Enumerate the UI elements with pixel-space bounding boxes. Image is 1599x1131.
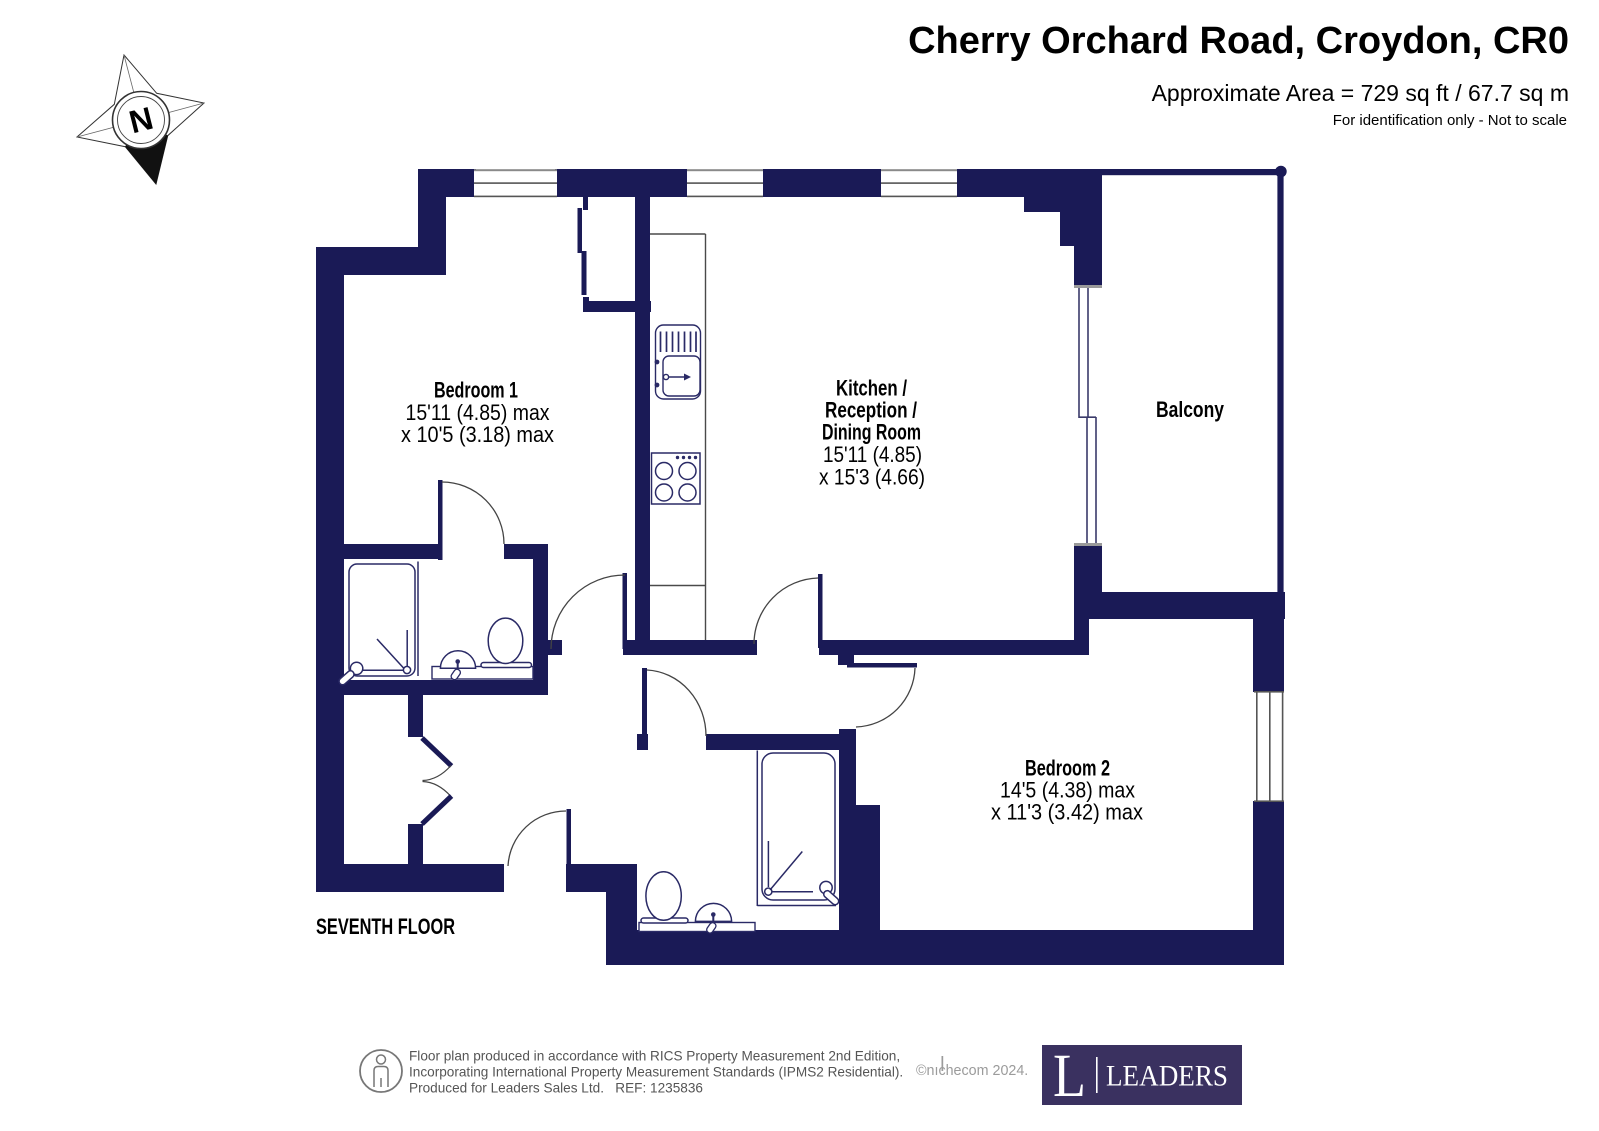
svg-text:x 11'3 (3.42) max: x 11'3 (3.42) max bbox=[991, 800, 1143, 825]
svg-text:Produced for Leaders Sales Ltd: Produced for Leaders Sales Ltd. REF: 123… bbox=[409, 1081, 703, 1096]
svg-text:Floor plan produced in accorda: Floor plan produced in accordance with R… bbox=[409, 1049, 900, 1064]
svg-text:15'11 (4.85): 15'11 (4.85) bbox=[823, 442, 922, 467]
svg-text:Approximate Area = 729 sq ft /: Approximate Area = 729 sq ft / 67.7 sq m bbox=[1152, 80, 1569, 106]
svg-text:LEADERS: LEADERS bbox=[1106, 1061, 1228, 1093]
svg-text:Balcony: Balcony bbox=[1156, 397, 1225, 422]
svg-text:L: L bbox=[1053, 1043, 1086, 1110]
svg-text:Bedroom 1: Bedroom 1 bbox=[434, 378, 518, 403]
svg-text:SEVENTH FLOOR: SEVENTH FLOOR bbox=[316, 914, 455, 939]
svg-text:Dining Room: Dining Room bbox=[822, 420, 921, 445]
svg-text:x 15'3 (4.66): x 15'3 (4.66) bbox=[819, 465, 925, 490]
svg-text:x 10'5 (3.18) max: x 10'5 (3.18) max bbox=[401, 422, 554, 447]
svg-text:©nıchecom 2024.: ©nıchecom 2024. bbox=[916, 1063, 1028, 1079]
svg-text:Cherry Orchard Road, Croydon,: Cherry Orchard Road, Croydon, CR0 bbox=[908, 20, 1569, 62]
svg-text:For identification only - Not: For identification only - Not to scale bbox=[1333, 112, 1567, 129]
svg-text:Incorporating International Pr: Incorporating International Property Mea… bbox=[409, 1065, 903, 1080]
